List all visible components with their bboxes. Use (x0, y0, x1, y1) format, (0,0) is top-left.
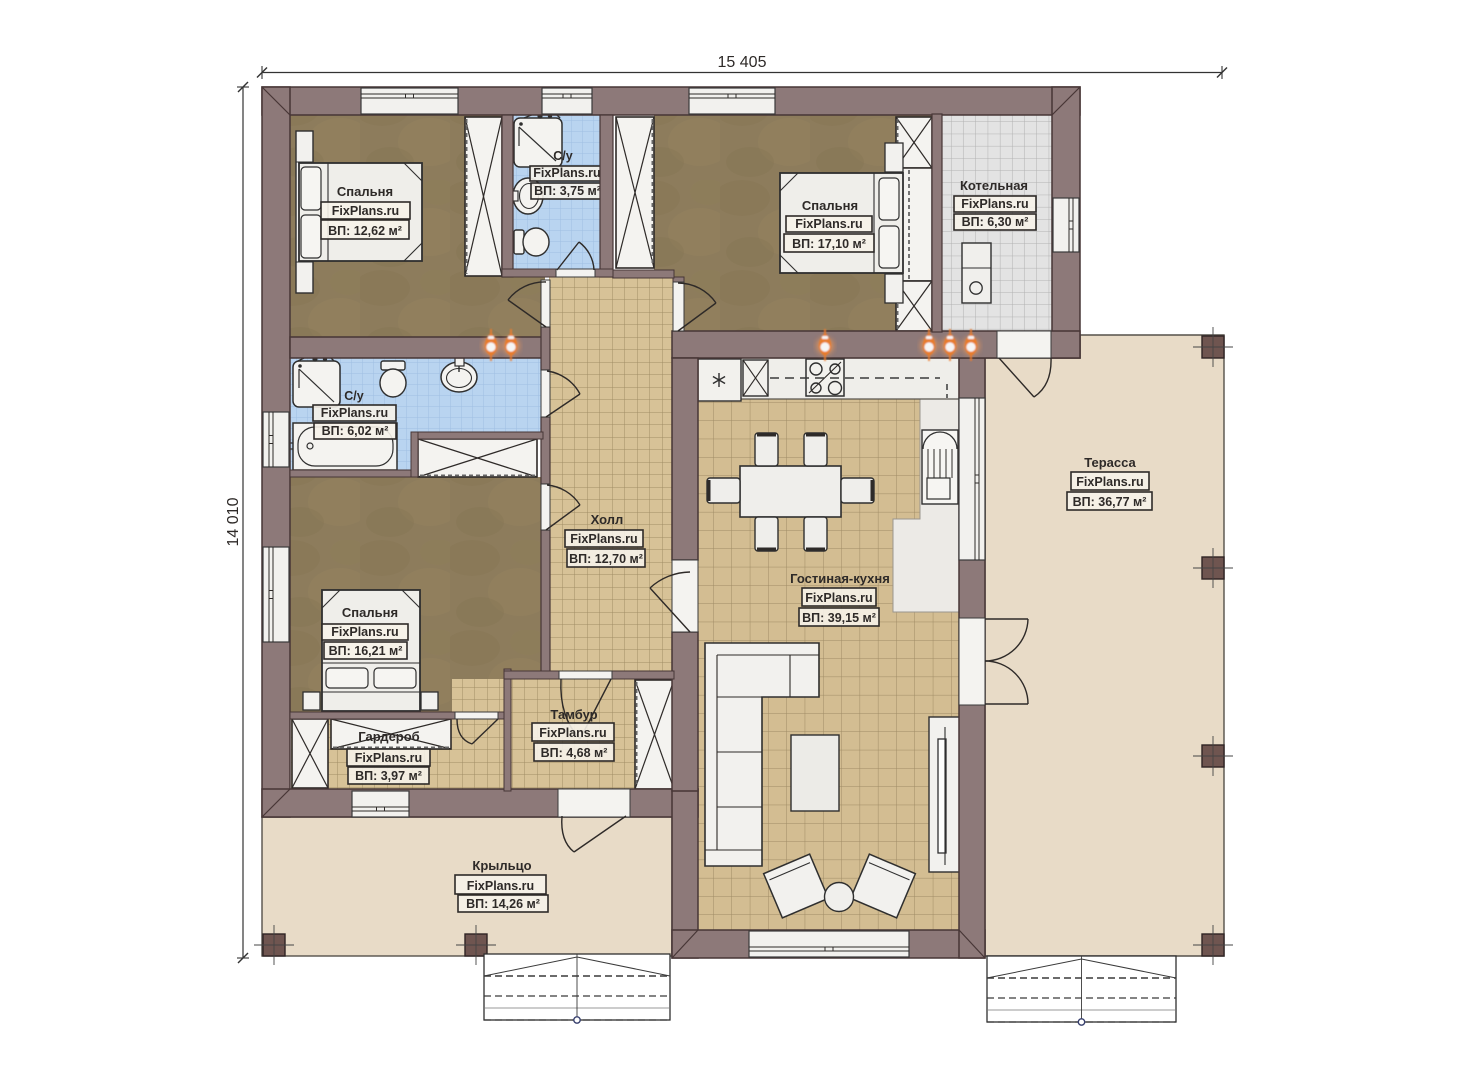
svg-text:ВП: 12,70 м²: ВП: 12,70 м² (569, 552, 643, 566)
svg-text:ВП: 3,75 м²: ВП: 3,75 м² (534, 184, 601, 198)
svg-text:ВП: 3,97 м²: ВП: 3,97 м² (355, 769, 422, 783)
svg-text:Котельная: Котельная (960, 178, 1028, 193)
svg-text:Гардероб: Гардероб (358, 729, 419, 744)
svg-text:Тамбур: Тамбур (550, 707, 597, 722)
svg-text:FixPlans.ru: FixPlans.ru (795, 217, 862, 231)
svg-text:FixPlans.ru: FixPlans.ru (570, 532, 637, 546)
svg-text:ВП: 39,15 м²: ВП: 39,15 м² (802, 611, 876, 625)
svg-text:С/у: С/у (344, 389, 364, 403)
svg-text:Крыльцо: Крыльцо (472, 858, 531, 873)
svg-text:Спальня: Спальня (802, 198, 858, 213)
svg-text:FixPlans.ru: FixPlans.ru (332, 204, 399, 218)
svg-text:FixPlans.ru: FixPlans.ru (1076, 475, 1143, 489)
svg-text:15 405: 15 405 (718, 54, 767, 71)
svg-text:Холл: Холл (591, 512, 624, 527)
svg-text:FixPlans.ru: FixPlans.ru (331, 625, 398, 639)
svg-text:FixPlans.ru: FixPlans.ru (321, 406, 388, 420)
svg-text:Гостиная-кухня: Гостиная-кухня (790, 571, 890, 586)
svg-text:ВП: 17,10 м²: ВП: 17,10 м² (792, 237, 866, 251)
svg-text:С/у: С/у (553, 149, 573, 163)
svg-text:Спальня: Спальня (342, 605, 398, 620)
svg-text:ВП: 4,68 м²: ВП: 4,68 м² (541, 746, 608, 760)
svg-text:ВП: 16,21 м²: ВП: 16,21 м² (329, 644, 403, 658)
svg-text:FixPlans.ru: FixPlans.ru (539, 726, 606, 740)
svg-text:14 010: 14 010 (225, 497, 242, 546)
svg-text:FixPlans.ru: FixPlans.ru (355, 751, 422, 765)
svg-text:ВП: 6,30 м²: ВП: 6,30 м² (962, 215, 1029, 229)
svg-text:ВП: 14,26 м²: ВП: 14,26 м² (466, 897, 540, 911)
svg-text:ВП: 6,02 м²: ВП: 6,02 м² (322, 424, 389, 438)
svg-text:ВП: 36,77 м²: ВП: 36,77 м² (1073, 495, 1147, 509)
svg-text:FixPlans.ru: FixPlans.ru (961, 197, 1028, 211)
svg-text:Терасса: Терасса (1084, 455, 1136, 470)
svg-text:FixPlans.ru: FixPlans.ru (805, 591, 872, 605)
svg-text:Спальня: Спальня (337, 184, 393, 199)
svg-text:ВП: 12,62 м²: ВП: 12,62 м² (328, 224, 402, 238)
svg-text:FixPlans.ru: FixPlans.ru (467, 879, 534, 893)
svg-text:FixPlans.ru: FixPlans.ru (533, 166, 600, 180)
